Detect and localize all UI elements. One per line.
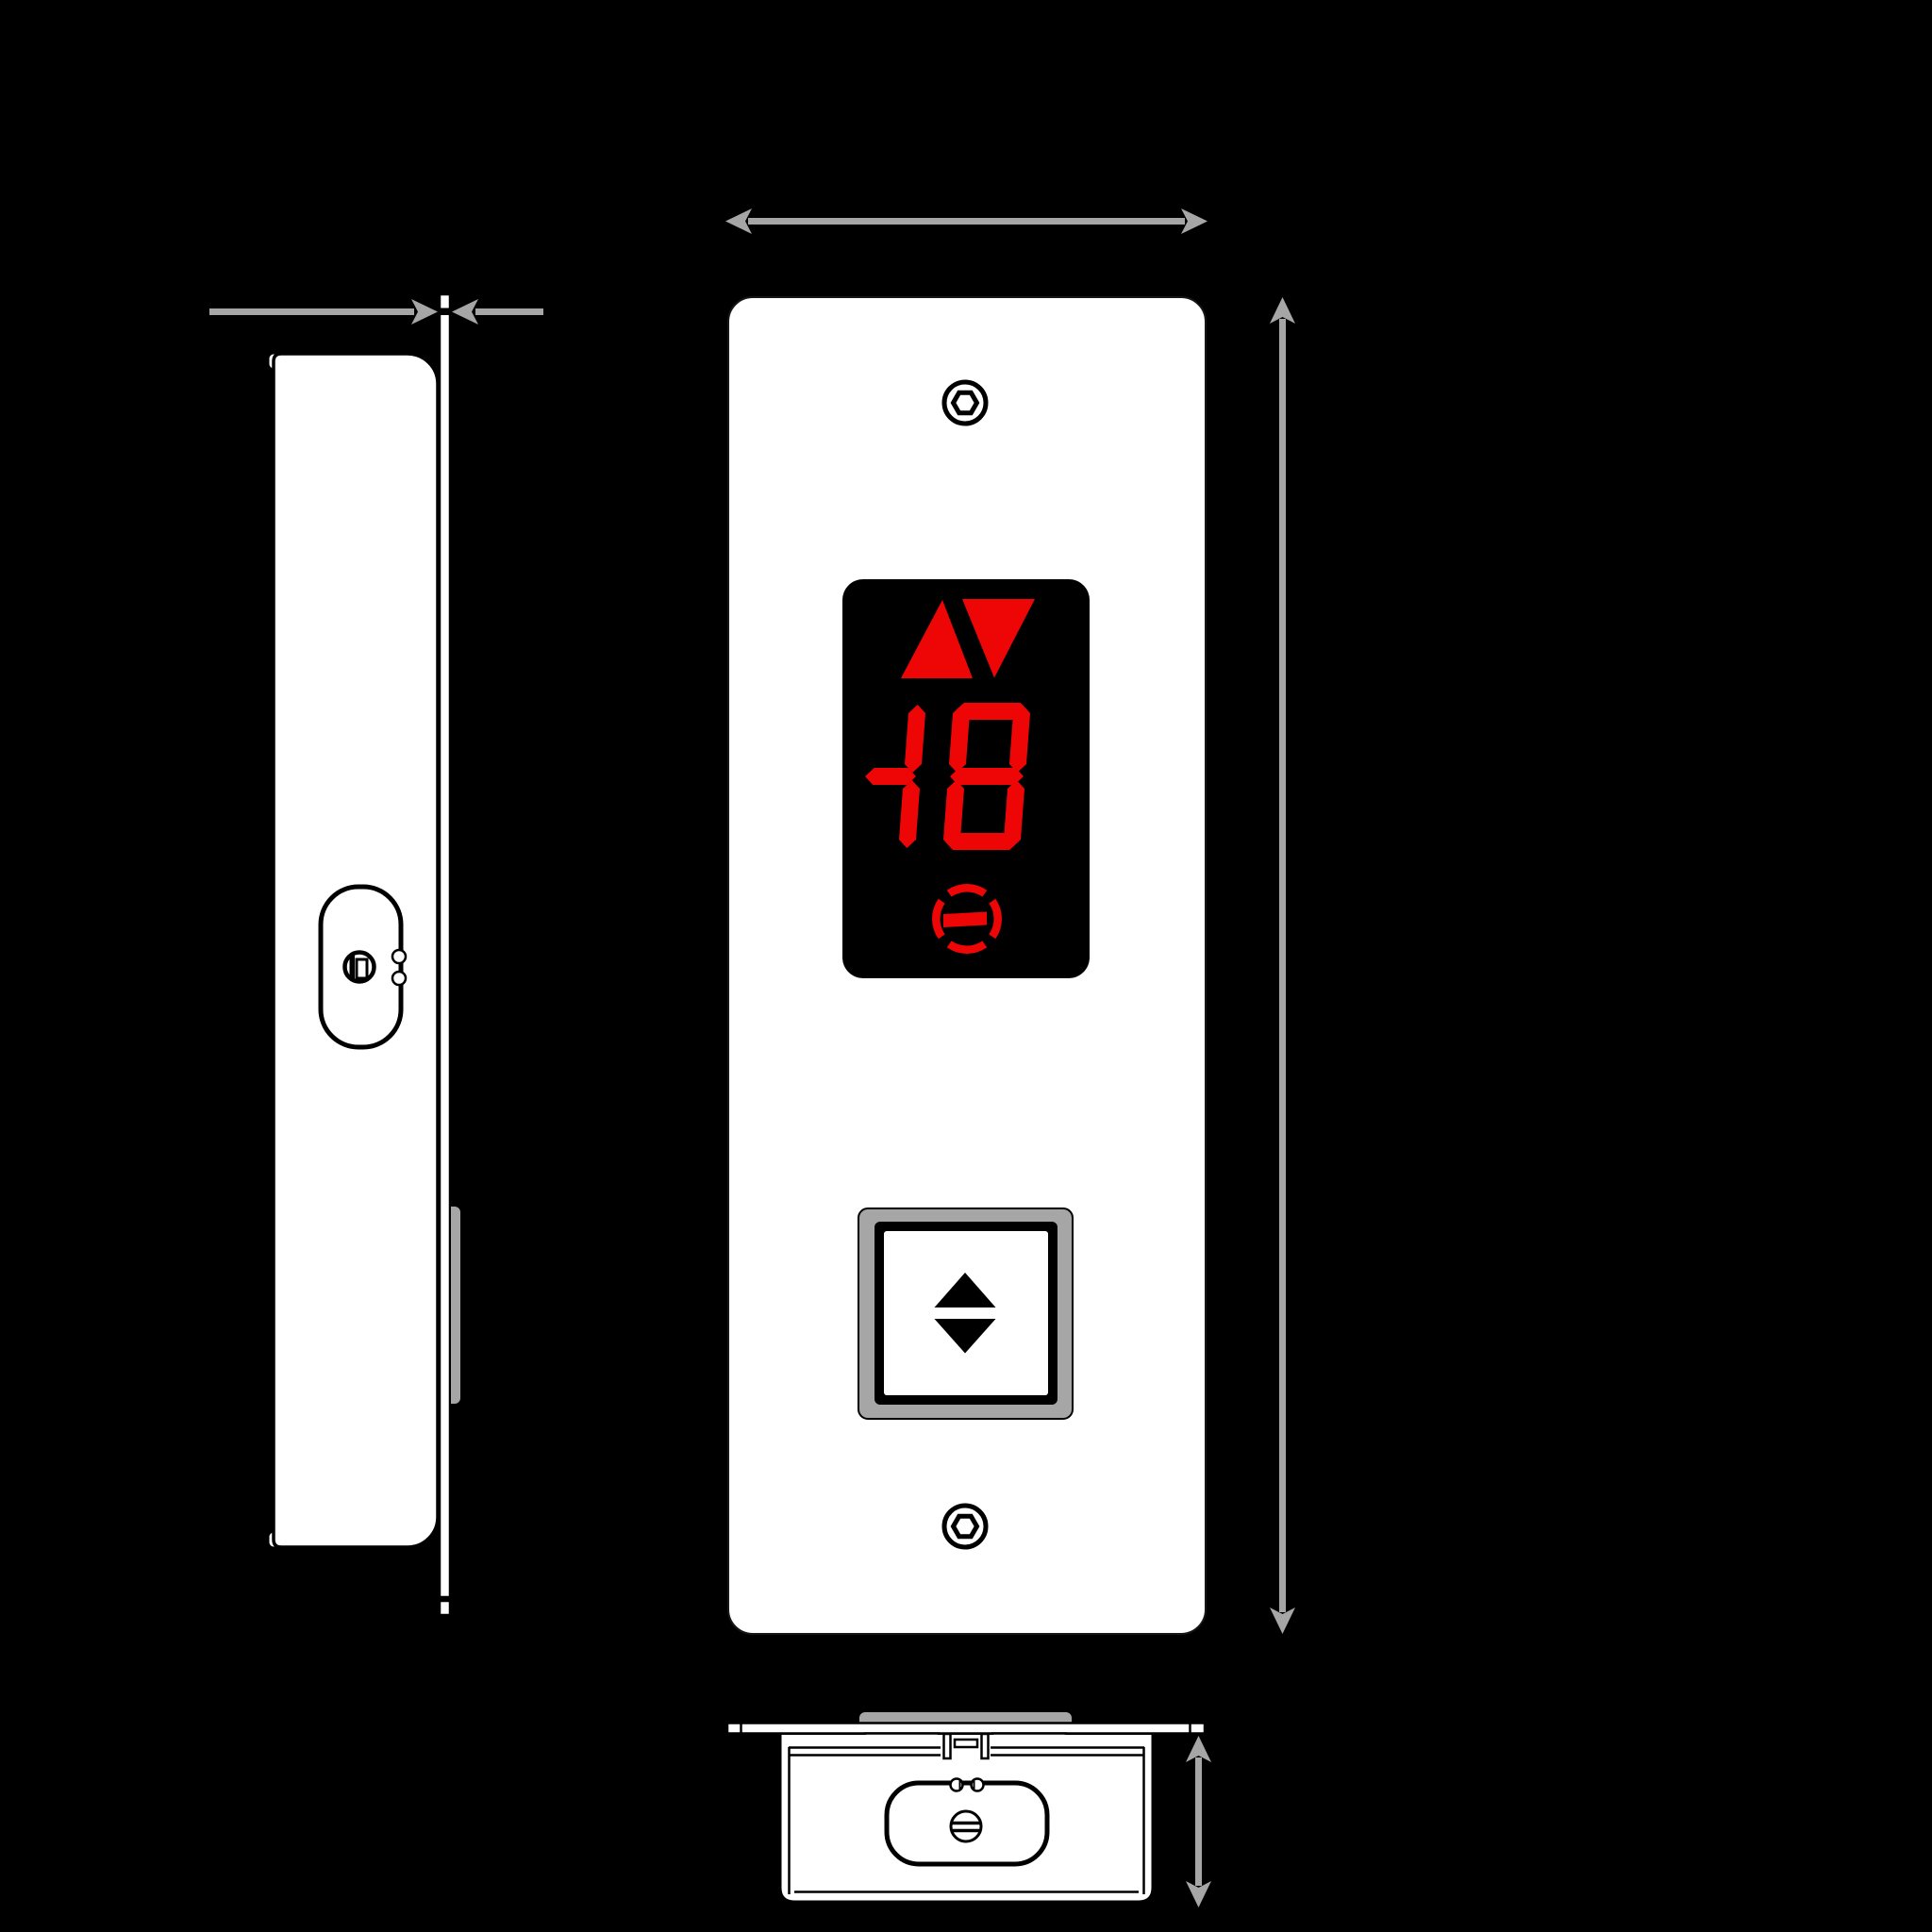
depth-dim-shaft	[1195, 1757, 1202, 1886]
thickness-dim-shaft-left	[209, 308, 414, 315]
side-dimension-cross-mark	[440, 308, 451, 316]
screw-bottom	[944, 1506, 986, 1547]
screw-top-hex-socket-icon	[954, 392, 977, 413]
digit-8-segment-g	[950, 768, 1024, 785]
side-hinge-pin-lower	[392, 972, 406, 985]
bottom-hinge-pin-left	[951, 1779, 963, 1791]
screw-top	[944, 382, 986, 424]
thickness-dim-arrowhead-right	[411, 299, 438, 325]
side-view	[268, 294, 461, 1615]
panel-height-dimension	[1270, 297, 1295, 1634]
box-depth-dimension	[1186, 1736, 1211, 1907]
bottom-hinge-pin-right	[972, 1779, 984, 1791]
bottom-faceplate-edge	[727, 1724, 1205, 1734]
width-dim-arrowhead-left	[725, 208, 752, 234]
thickness-dim-arrowhead-left	[452, 299, 478, 325]
drawing-canvas	[0, 0, 1932, 1932]
call-button	[858, 1208, 1073, 1419]
panel-width-dimension	[725, 208, 1207, 234]
latch-bridge	[955, 1740, 977, 1747]
faceplate-thickness-dimension	[209, 299, 543, 325]
bottom-view	[727, 1711, 1205, 1902]
latch-pin-left	[944, 1734, 951, 1758]
digit-1-segment-gs	[865, 768, 916, 785]
side-faceplate-stub	[440, 1601, 450, 1615]
technical-drawing	[0, 0, 1932, 1932]
side-lock-slot	[350, 954, 356, 980]
front-view	[728, 297, 1206, 1634]
side-button-protrusion	[450, 1206, 461, 1405]
screw-bottom-hex-socket-icon	[954, 1516, 977, 1537]
button-face	[884, 1231, 1048, 1395]
side-faceplate-edge	[440, 294, 450, 1597]
height-dim-shaft	[1279, 319, 1286, 1612]
bottom-button-protrusion	[858, 1711, 1073, 1724]
width-dim-arrowhead-right	[1181, 208, 1207, 234]
display-status-bar	[943, 912, 987, 928]
side-hinge-pin-upper	[392, 950, 406, 963]
floor-display	[842, 579, 1090, 978]
latch-pin-right	[982, 1734, 989, 1758]
bottom-slotted-screw	[951, 1811, 981, 1841]
thickness-dim-shaft-right	[475, 308, 543, 315]
width-dim-shaft	[748, 218, 1185, 225]
